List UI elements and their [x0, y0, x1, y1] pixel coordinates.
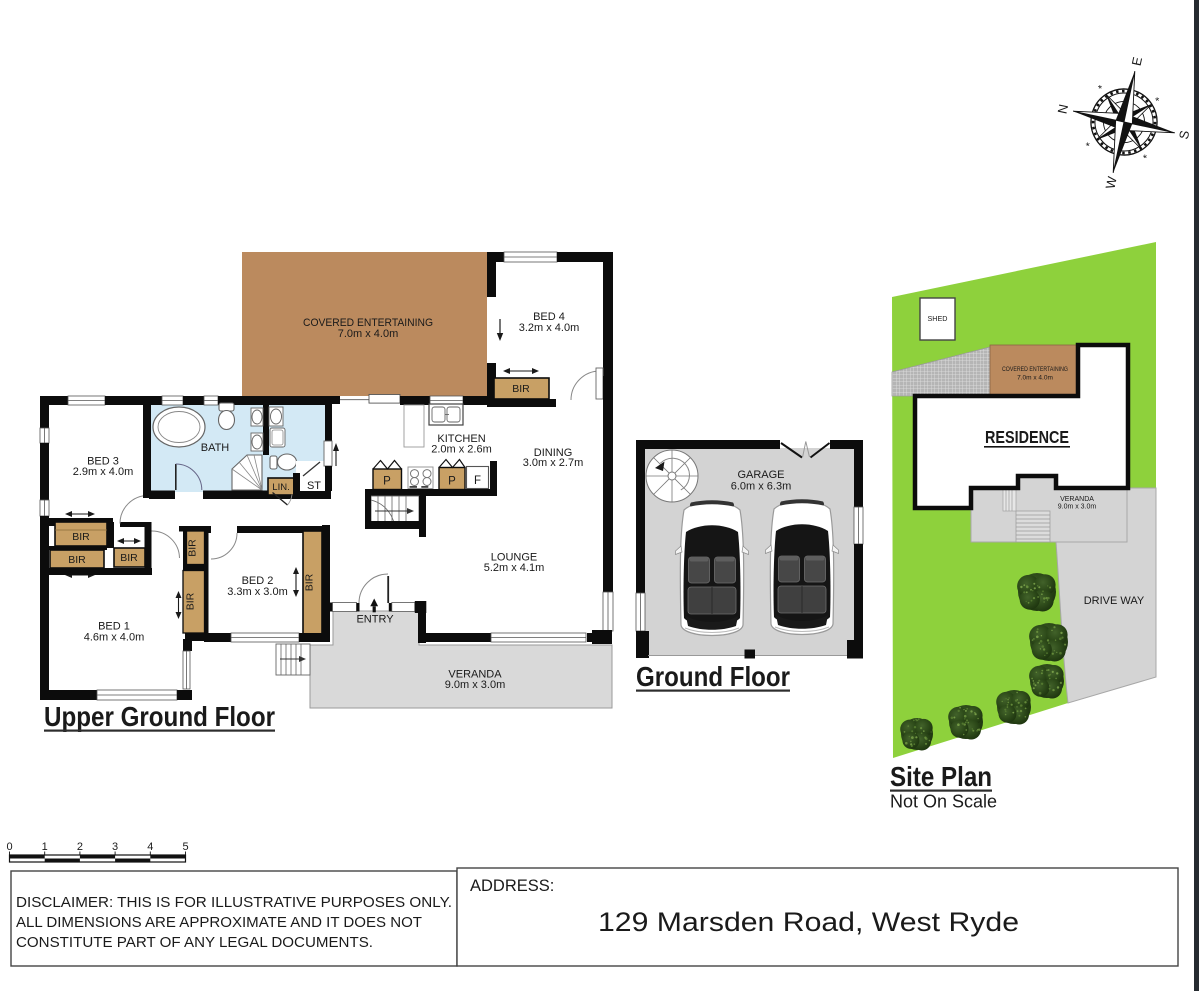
svg-text:Site Plan: Site Plan: [890, 761, 992, 792]
svg-text:COVERED ENTERTAINING: COVERED ENTERTAINING: [1002, 366, 1068, 373]
svg-text:F: F: [474, 475, 481, 487]
svg-text:BIR: BIR: [72, 531, 90, 543]
svg-text:2.9m x 4.0m: 2.9m x 4.0m: [73, 466, 134, 478]
svg-text:BIR: BIR: [68, 554, 86, 566]
svg-text:ADDRESS:: ADDRESS:: [470, 877, 554, 895]
svg-text:7.0m x 4.0m: 7.0m x 4.0m: [338, 328, 399, 340]
svg-text:0: 0: [6, 841, 12, 853]
svg-text:4: 4: [147, 841, 153, 853]
svg-text:9.0m x 3.0m: 9.0m x 3.0m: [1058, 504, 1097, 511]
svg-text:RESIDENCE: RESIDENCE: [985, 427, 1069, 447]
svg-text:6.0m x 6.3m: 6.0m x 6.3m: [731, 481, 792, 493]
svg-text:VERANDA: VERANDA: [1060, 496, 1094, 503]
svg-text:9.0m x 3.0m: 9.0m x 3.0m: [445, 679, 506, 691]
svg-text:LIN.: LIN.: [272, 482, 289, 493]
svg-text:Upper Ground Floor: Upper Ground Floor: [44, 701, 275, 732]
svg-text:3.2m x 4.0m: 3.2m x 4.0m: [519, 322, 580, 334]
svg-text:DRIVE WAY: DRIVE WAY: [1084, 595, 1145, 607]
svg-text:BATH: BATH: [201, 442, 230, 454]
svg-text:BIR: BIR: [120, 552, 138, 564]
svg-text:GARAGE: GARAGE: [737, 469, 784, 481]
svg-text:P: P: [383, 476, 391, 488]
svg-text:1: 1: [42, 841, 48, 853]
svg-text:3.3m x 3.0m: 3.3m x 3.0m: [227, 586, 288, 598]
svg-text:Not On Scale: Not On Scale: [890, 792, 997, 812]
svg-text:DISCLAIMER: THIS IS FOR ILLUST: DISCLAIMER: THIS IS FOR ILLUSTRATIVE PUR…: [16, 894, 452, 911]
svg-text:P: P: [448, 476, 456, 488]
svg-text:2.0m x 2.6m: 2.0m x 2.6m: [431, 444, 492, 456]
svg-text:ALL DIMENSIONS ARE APPROXIMATE: ALL DIMENSIONS ARE APPROXIMATE AND IT DO…: [16, 914, 422, 931]
svg-text:4.6m x 4.0m: 4.6m x 4.0m: [84, 631, 145, 643]
svg-text:ST: ST: [307, 480, 321, 492]
svg-text:129 Marsden Road, West Ryde: 129 Marsden Road, West Ryde: [598, 907, 1019, 937]
svg-text:3: 3: [112, 841, 118, 853]
svg-text:Ground Floor: Ground Floor: [636, 661, 790, 692]
svg-text:5.2m x 4.1m: 5.2m x 4.1m: [484, 562, 545, 574]
svg-text:CONSTITUTE PART OF ANY LEGAL D: CONSTITUTE PART OF ANY LEGAL DOCUMENTS.: [16, 934, 373, 951]
svg-text:BIR: BIR: [187, 539, 199, 557]
svg-text:BIR: BIR: [185, 592, 197, 610]
svg-text:SHED: SHED: [928, 316, 948, 323]
svg-text:BIR: BIR: [512, 383, 530, 395]
svg-text:2: 2: [77, 841, 83, 853]
svg-text:7.0m x 4.0m: 7.0m x 4.0m: [1017, 375, 1053, 382]
svg-text:5: 5: [182, 841, 188, 853]
svg-text:BIR: BIR: [304, 573, 316, 591]
svg-text:ENTRY: ENTRY: [356, 614, 394, 626]
svg-text:3.0m x 2.7m: 3.0m x 2.7m: [523, 457, 584, 469]
